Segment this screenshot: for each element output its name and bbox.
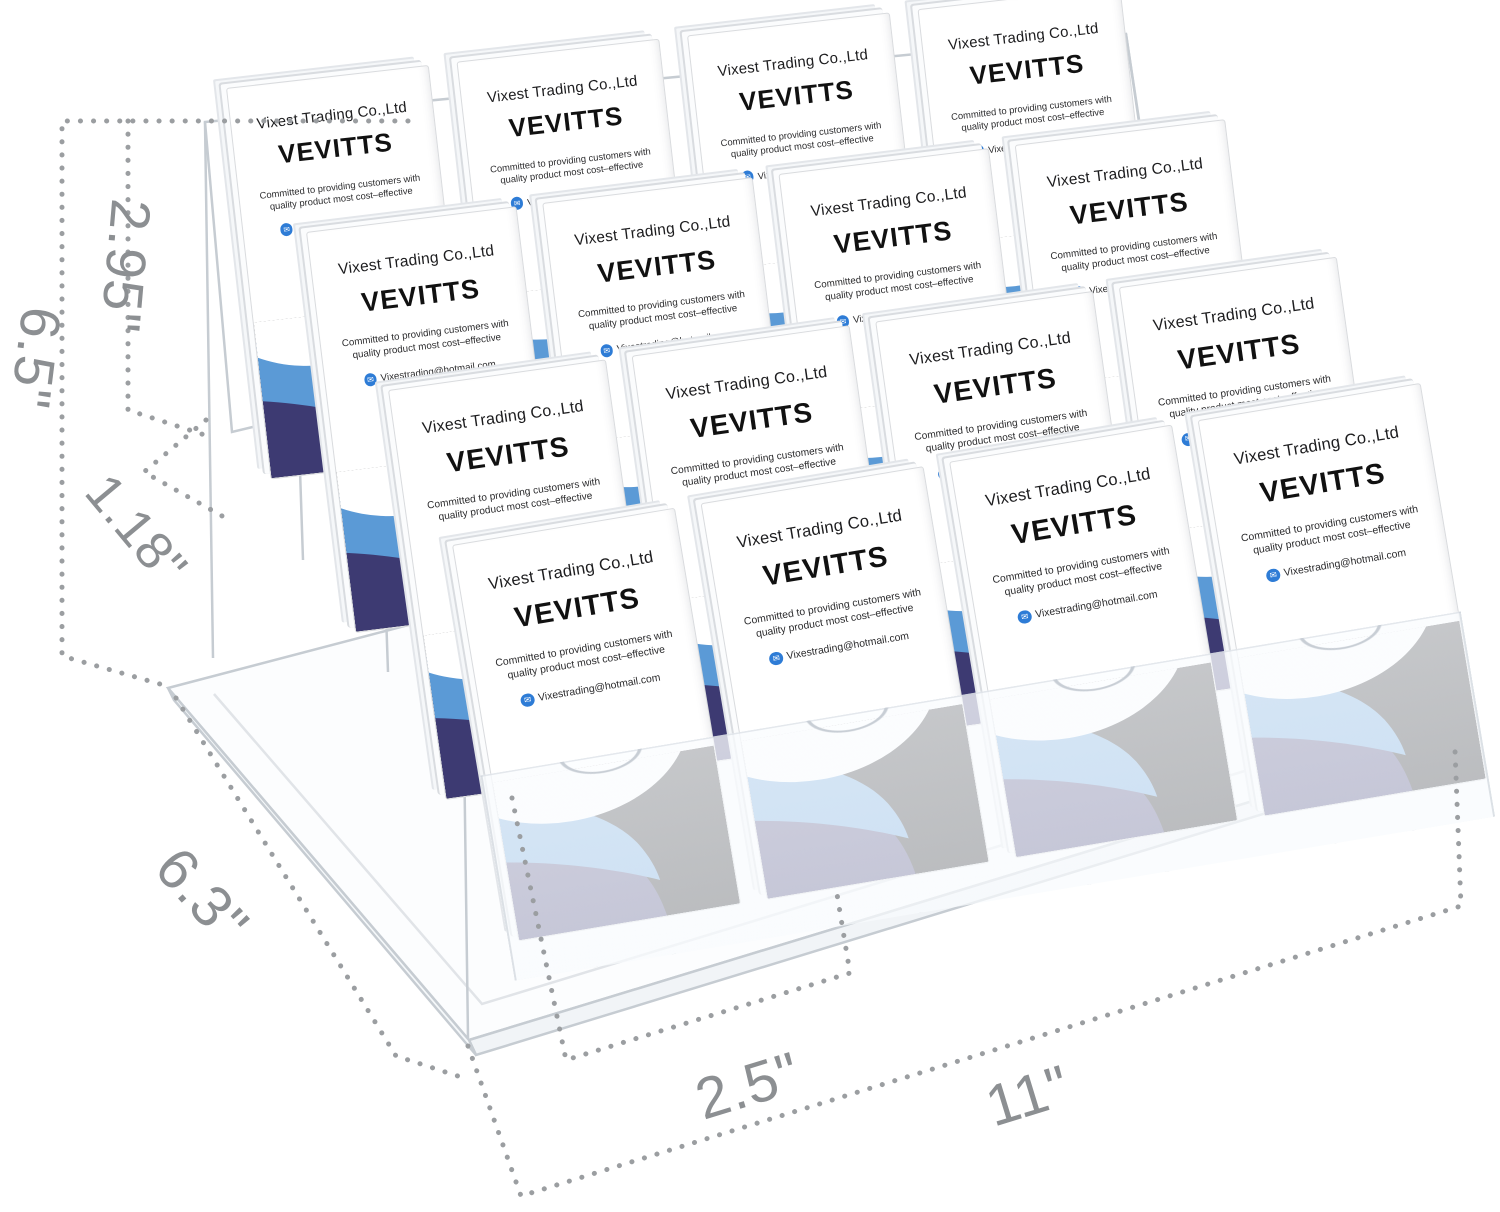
card-email: Vixestrading@hotmail.com bbox=[786, 631, 910, 662]
email-icon: ✉ bbox=[1266, 568, 1281, 583]
email-icon: ✉ bbox=[769, 651, 784, 666]
card-email: Vixestrading@hotmail.com bbox=[1035, 589, 1159, 620]
email-icon: ✉ bbox=[1017, 609, 1032, 624]
email-icon: ✉ bbox=[600, 344, 614, 358]
email-icon: ✉ bbox=[280, 223, 293, 236]
dimension-label-back-panel-height: 2.95" bbox=[88, 196, 164, 335]
card-email: Vixestrading@hotmail.com bbox=[537, 672, 661, 703]
email-icon: ✉ bbox=[364, 373, 378, 387]
card-email: Vixestrading@hotmail.com bbox=[1283, 548, 1407, 579]
product-photo: Vixest Trading Co.,Ltd VEVITTS Committed… bbox=[0, 0, 1500, 1212]
dimension-label-total-height: 6.5" bbox=[0, 304, 74, 413]
email-icon: ✉ bbox=[520, 692, 535, 707]
